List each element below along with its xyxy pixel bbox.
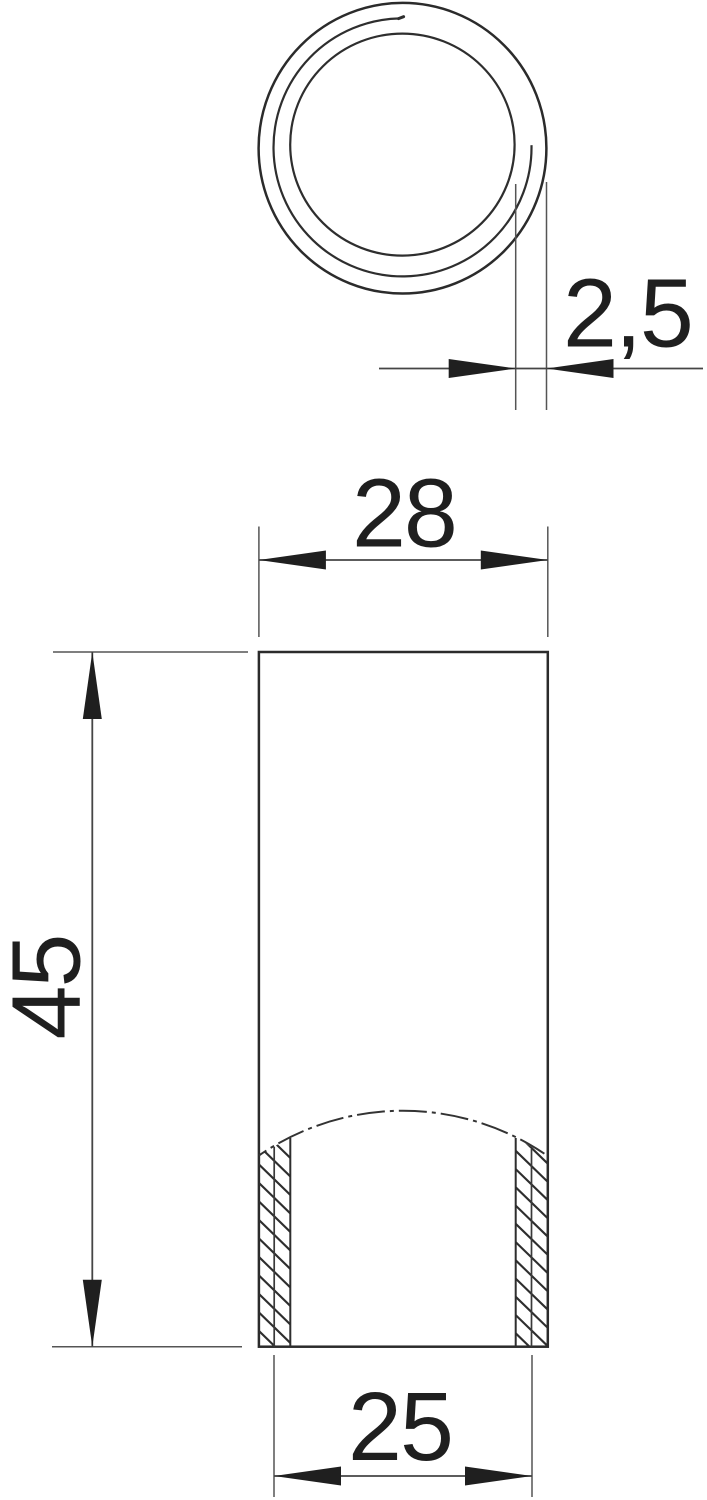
svg-text:2,5: 2,5 [563, 259, 692, 368]
svg-text:28: 28 [352, 459, 456, 568]
svg-text:45: 45 [0, 936, 101, 1040]
svg-text:25: 25 [348, 1372, 452, 1481]
